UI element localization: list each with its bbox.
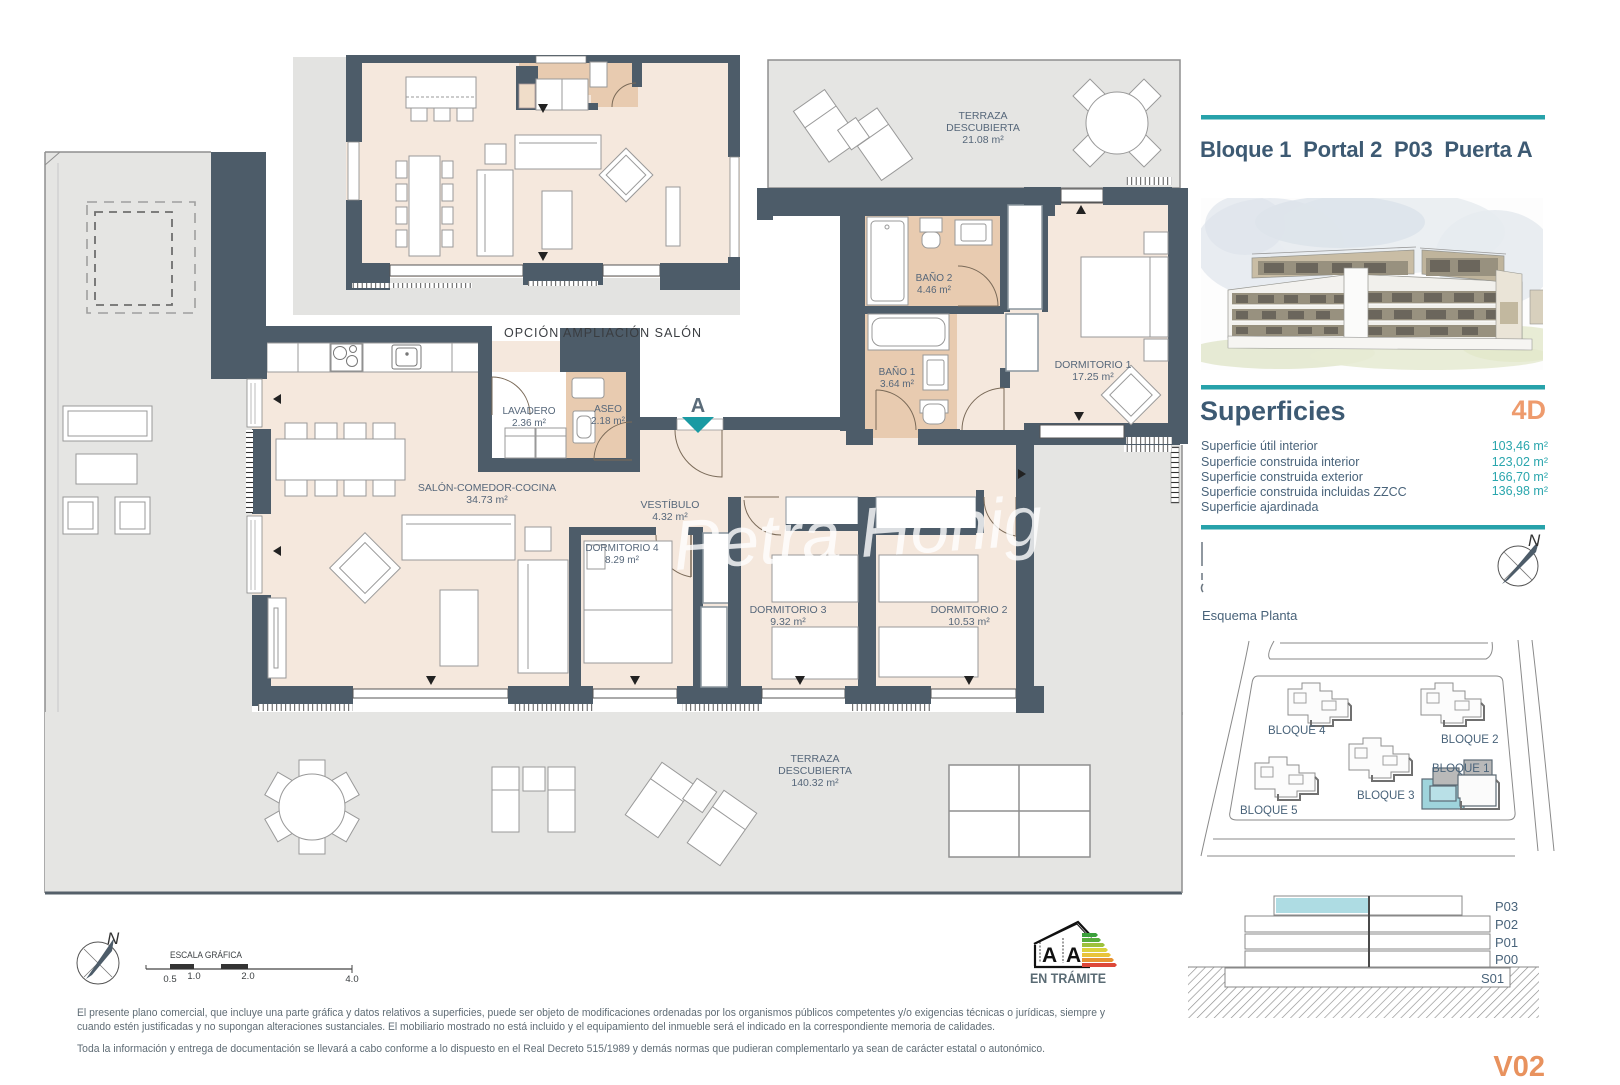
svg-text:A: A — [1066, 944, 1081, 967]
svg-text:10.53 m²: 10.53 m² — [948, 616, 990, 628]
svg-text:140.32 m²: 140.32 m² — [791, 777, 839, 789]
svg-text:4.0: 4.0 — [345, 974, 358, 985]
svg-text:ESCALA GRÁFICA: ESCALA GRÁFICA — [170, 950, 243, 961]
svg-text:Superficie útil interior: Superficie útil interior — [1201, 439, 1318, 453]
svg-text:BLOQUE 1: BLOQUE 1 — [1432, 763, 1490, 775]
svg-text:DORMITORIO 3: DORMITORIO 3 — [750, 604, 827, 616]
svg-text:BLOQUE 5: BLOQUE 5 — [1240, 805, 1298, 817]
svg-text:SALÓN-COMEDOR-COCINA: SALÓN-COMEDOR-COCINA — [418, 481, 556, 494]
svg-text:21.08 m²: 21.08 m² — [962, 134, 1004, 146]
svg-text:3.64 m²: 3.64 m² — [880, 379, 915, 390]
svg-text:Esquema Planta: Esquema Planta — [1202, 608, 1298, 623]
svg-text:0.5: 0.5 — [163, 974, 176, 985]
svg-text:cuando estén justificadas y no: cuando estén justificadas y no supongan … — [77, 1021, 995, 1033]
svg-text:P02: P02 — [1495, 917, 1518, 932]
svg-text:2.36 m²: 2.36 m² — [512, 418, 547, 429]
svg-text:Superficie construida interior: Superficie construida interior — [1201, 455, 1359, 469]
svg-text:V02: V02 — [1493, 1051, 1545, 1080]
svg-text:DORMITORIO 1: DORMITORIO 1 — [1055, 359, 1132, 371]
svg-text:EN TRÁMITE: EN TRÁMITE — [1030, 971, 1106, 986]
svg-text:BLOQUE 4: BLOQUE 4 — [1268, 725, 1326, 737]
svg-text:Superficie construida incluida: Superficie construida incluidas ZZCC — [1201, 485, 1407, 499]
svg-text:9.32 m²: 9.32 m² — [770, 616, 806, 628]
svg-text:17.25 m²: 17.25 m² — [1072, 371, 1114, 383]
svg-text:Bloque 1 Portal 2 P03 Puert: Bloque 1 Portal 2 P03 Puerta A — [1200, 137, 1533, 162]
svg-text:P03: P03 — [1495, 899, 1518, 914]
svg-text:Superficie construida exterior: Superficie construida exterior — [1201, 470, 1363, 484]
svg-text:DORMITORIO 2: DORMITORIO 2 — [931, 604, 1008, 616]
svg-text:A: A — [1042, 944, 1057, 967]
svg-text:2.18 m²: 2.18 m² — [591, 416, 626, 427]
svg-text:A: A — [691, 395, 705, 417]
svg-text:123,02 m²: 123,02 m² — [1492, 455, 1548, 469]
svg-text:BAÑO 1: BAÑO 1 — [879, 365, 916, 378]
svg-text:Superficie ajardinada: Superficie ajardinada — [1201, 500, 1318, 514]
svg-text:DESCUBIERTA: DESCUBIERTA — [778, 765, 852, 777]
svg-text:El presente plano comercial, q: El presente plano comercial, que incluye… — [77, 1007, 1105, 1019]
svg-text:DORMITORIO 4: DORMITORIO 4 — [585, 543, 659, 554]
svg-text:Superficies: Superficies — [1200, 396, 1346, 426]
svg-text:136,98 m²: 136,98 m² — [1492, 484, 1548, 498]
svg-text:BAÑO 2: BAÑO 2 — [916, 271, 953, 284]
svg-text:P01: P01 — [1495, 935, 1518, 950]
svg-text:BLOQUE 3: BLOQUE 3 — [1357, 790, 1415, 802]
svg-text:103,46 m²: 103,46 m² — [1492, 439, 1548, 453]
svg-text:34.73 m²: 34.73 m² — [466, 494, 508, 506]
svg-text:4.46 m²: 4.46 m² — [917, 285, 952, 296]
svg-text:Toda la información y entrega: Toda la información y entrega de documen… — [77, 1043, 1045, 1055]
svg-text:P00: P00 — [1495, 952, 1518, 967]
svg-text:8.29 m²: 8.29 m² — [605, 555, 640, 566]
svg-text:TERRAZA: TERRAZA — [958, 110, 1007, 122]
svg-text:LAVADERO: LAVADERO — [503, 406, 556, 417]
svg-text:N: N — [1528, 531, 1541, 550]
svg-text:2.0: 2.0 — [241, 971, 254, 982]
svg-text:166,70 m²: 166,70 m² — [1492, 470, 1548, 484]
svg-text:DESCUBIERTA: DESCUBIERTA — [946, 122, 1020, 134]
svg-text:N: N — [107, 929, 120, 948]
svg-text:OPCIÓN AMPLIACIÓN SALÓN: OPCIÓN AMPLIACIÓN SALÓN — [504, 325, 702, 340]
svg-text:BLOQUE 2: BLOQUE 2 — [1441, 734, 1499, 746]
svg-text:ASEO: ASEO — [594, 404, 622, 415]
svg-text:1.0: 1.0 — [187, 971, 200, 982]
svg-text:4D: 4D — [1511, 395, 1546, 425]
svg-text:TERRAZA: TERRAZA — [790, 753, 839, 765]
svg-text:S01: S01 — [1481, 971, 1504, 986]
